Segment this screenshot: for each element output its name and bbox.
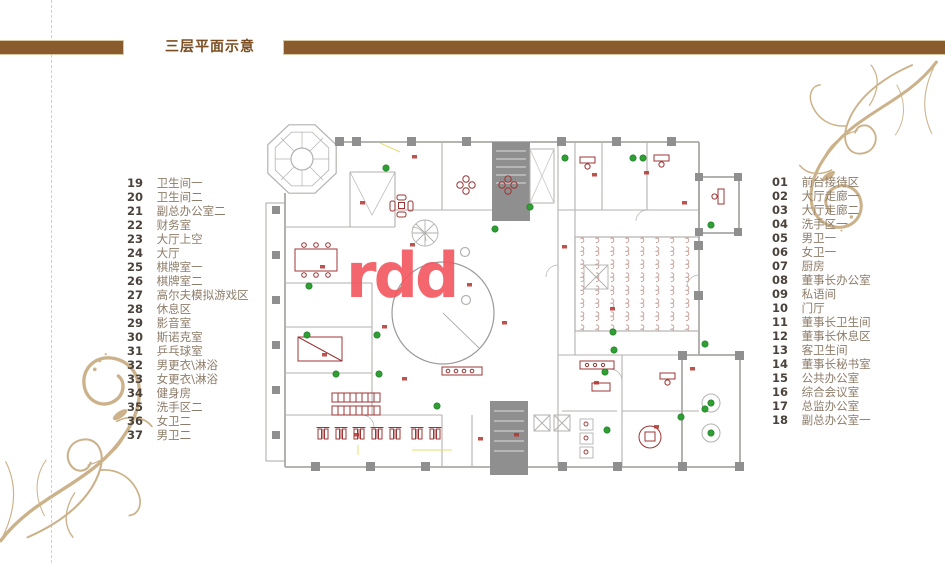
legend-item-label: 影音室: [157, 316, 192, 330]
legend-item-label: 财务室: [157, 218, 192, 232]
legend-item-label: 副总办公室二: [157, 204, 226, 218]
legend-item-number: 33: [127, 372, 146, 386]
legend-item: 03 大厅走廊二: [772, 203, 871, 217]
legend-item-label: 卫生间二: [157, 190, 203, 204]
legend-item-number: 01: [772, 175, 791, 189]
legend-item-number: 32: [127, 358, 146, 372]
legend-item-number: 23: [127, 232, 146, 246]
legend-item-label: 厨房: [802, 259, 825, 273]
legend-item-label: 总监办公室: [802, 399, 860, 413]
legend-item-label: 客卫生间: [802, 343, 848, 357]
legend-item: 18 副总办公室一: [772, 413, 871, 427]
legend-item-label: 女更衣\淋浴: [157, 372, 218, 386]
legend-item: 08 董事长办公室: [772, 273, 871, 287]
legend-item-number: 12: [772, 329, 791, 343]
legend-item-number: 37: [127, 428, 146, 442]
legend-item-label: 男卫一: [802, 231, 837, 245]
legend-item-number: 19: [127, 176, 146, 190]
legend-item: 26 棋牌室二: [127, 274, 249, 288]
legend-item: 04 洗手区一: [772, 217, 871, 231]
legend-item-number: 27: [127, 288, 146, 302]
legend-item-number: 06: [772, 245, 791, 259]
legend-item-number: 08: [772, 273, 791, 287]
legend-item-label: 洗手区二: [157, 400, 203, 414]
legend-item-number: 13: [772, 343, 791, 357]
legend-item-label: 斯诺克室: [157, 330, 203, 344]
legend-item: 24 大厅: [127, 246, 249, 260]
legend-item-number: 14: [772, 357, 791, 371]
legend-item: 11 董事长卫生间: [772, 315, 871, 329]
legend-item-label: 棋牌室二: [157, 274, 203, 288]
floor-plan: rdd: [262, 115, 747, 485]
legend-item-number: 09: [772, 287, 791, 301]
legend-item-number: 11: [772, 315, 791, 329]
legend-item-number: 04: [772, 217, 791, 231]
legend-item: 05 男卫一: [772, 231, 871, 245]
legend-item: 20 卫生间二: [127, 190, 249, 204]
legend-item-label: 大厅走廊一: [802, 189, 860, 203]
legend-item-number: 02: [772, 189, 791, 203]
legend-item-number: 05: [772, 231, 791, 245]
legend-item: 36 女卫二: [127, 414, 249, 428]
legend-item-label: 高尔夫模拟游戏区: [157, 288, 249, 302]
legend-item-label: 前台接待区: [802, 175, 860, 189]
legend-item: 35 洗手区二: [127, 400, 249, 414]
legend-item-number: 17: [772, 399, 791, 413]
title-bar-right-segment: [283, 40, 945, 55]
legend-item: 07 厨房: [772, 259, 871, 273]
legend-item-number: 21: [127, 204, 146, 218]
room-legend-right: 01 前台接待区 02 大厅走廊一 03 大厅走廊二 04 洗手区一 05 男卫…: [772, 175, 871, 427]
legend-item: 02 大厅走廊一: [772, 189, 871, 203]
legend-item: 16 综合会议室: [772, 385, 871, 399]
legend-item: 25 棋牌室一: [127, 260, 249, 274]
legend-item-label: 洗手区一: [802, 217, 848, 231]
legend-item: 37 男卫二: [127, 428, 249, 442]
legend-item-label: 健身房: [157, 386, 192, 400]
legend-item: 21 副总办公室二: [127, 204, 249, 218]
legend-item: 06 女卫一: [772, 245, 871, 259]
page-title: 三层平面示意: [165, 38, 255, 57]
legend-item-number: 16: [772, 385, 791, 399]
legend-item: 33 女更衣\淋浴: [127, 372, 249, 386]
legend-item-number: 31: [127, 344, 146, 358]
legend-item-label: 休息区: [157, 302, 192, 316]
legend-item: 27 高尔夫模拟游戏区: [127, 288, 249, 302]
legend-item-label: 女卫二: [157, 414, 192, 428]
legend-item-label: 董事长卫生间: [802, 315, 871, 329]
legend-item: 01 前台接待区: [772, 175, 871, 189]
legend-item-number: 03: [772, 203, 791, 217]
legend-item-label: 公共办公室: [802, 371, 860, 385]
legend-item: 23 大厅上空: [127, 232, 249, 246]
legend-item-label: 私语间: [802, 287, 837, 301]
legend-item-label: 棋牌室一: [157, 260, 203, 274]
legend-item-label: 大厅走廊二: [802, 203, 860, 217]
legend-item: 32 男更衣\淋浴: [127, 358, 249, 372]
legend-item: 10 门厅: [772, 301, 871, 315]
legend-item-number: 10: [772, 301, 791, 315]
legend-item-label: 副总办公室一: [802, 413, 871, 427]
legend-item: 19 卫生间一: [127, 176, 249, 190]
legend-item: 14 董事长秘书室: [772, 357, 871, 371]
legend-item-label: 女卫一: [802, 245, 837, 259]
legend-item-number: 25: [127, 260, 146, 274]
legend-item: 30 斯诺克室: [127, 330, 249, 344]
legend-item-number: 18: [772, 413, 791, 427]
legend-item-number: 34: [127, 386, 146, 400]
legend-item-number: 15: [772, 371, 791, 385]
legend-item-label: 大厅上空: [157, 232, 203, 246]
legend-item: 09 私语间: [772, 287, 871, 301]
legend-item-number: 35: [127, 400, 146, 414]
legend-item: 17 总监办公室: [772, 399, 871, 413]
title-bar-left-segment: [0, 40, 124, 55]
slide-root: 三层平面示意 19 卫生间一: [0, 0, 945, 563]
legend-item-number: 20: [127, 190, 146, 204]
legend-item: 22 财务室: [127, 218, 249, 232]
legend-item-number: 22: [127, 218, 146, 232]
floor-plan-drawing: [262, 115, 747, 485]
legend-item-number: 07: [772, 259, 791, 273]
legend-item-number: 29: [127, 316, 146, 330]
legend-item: 29 影音室: [127, 316, 249, 330]
rdd-logo-watermark: rdd: [346, 245, 456, 307]
legend-item: 28 休息区: [127, 302, 249, 316]
legend-item: 34 健身房: [127, 386, 249, 400]
legend-item: 31 乒乓球室: [127, 344, 249, 358]
legend-item-number: 36: [127, 414, 146, 428]
legend-item-label: 综合会议室: [802, 385, 860, 399]
legend-item: 12 董事长休息区: [772, 329, 871, 343]
legend-item-label: 大厅: [157, 246, 180, 260]
legend-item: 15 公共办公室: [772, 371, 871, 385]
legend-item-number: 26: [127, 274, 146, 288]
legend-item-label: 乒乓球室: [157, 344, 203, 358]
legend-item-number: 30: [127, 330, 146, 344]
legend-item-label: 男更衣\淋浴: [157, 358, 218, 372]
legend-item-label: 董事长休息区: [802, 329, 871, 343]
legend-item-label: 卫生间一: [157, 176, 203, 190]
legend-item: 13 客卫生间: [772, 343, 871, 357]
legend-item-number: 24: [127, 246, 146, 260]
legend-item-label: 董事长秘书室: [802, 357, 871, 371]
legend-item-label: 男卫二: [157, 428, 192, 442]
legend-item-number: 28: [127, 302, 146, 316]
legend-item-label: 门厅: [802, 301, 825, 315]
room-legend-left: 19 卫生间一 20 卫生间二 21 副总办公室二 22 财务室 23 大厅上空…: [127, 176, 249, 442]
legend-item-label: 董事长办公室: [802, 273, 871, 287]
